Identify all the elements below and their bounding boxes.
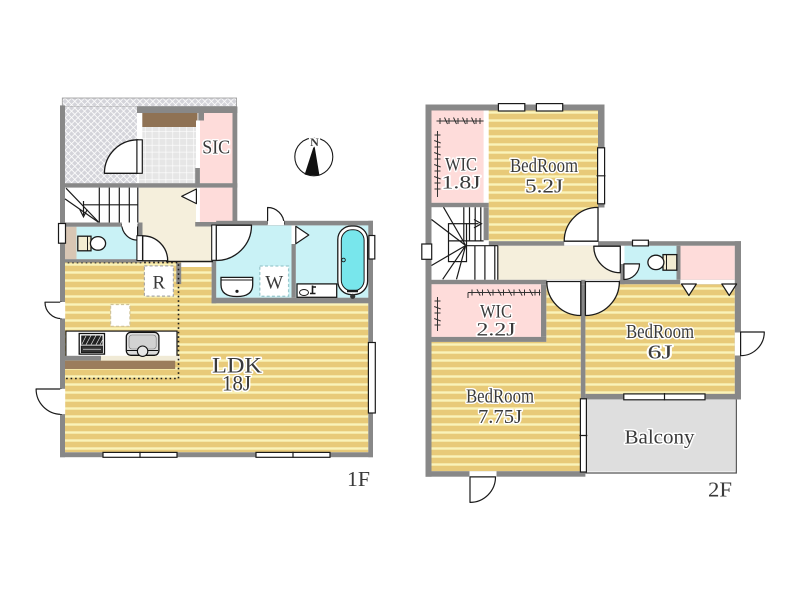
- svg-text:5.2J: 5.2J: [525, 176, 563, 198]
- svg-text:6J: 6J: [648, 342, 673, 364]
- svg-text:1F: 1F: [347, 467, 370, 491]
- svg-text:7.75J: 7.75J: [478, 406, 522, 428]
- svg-text:BedRoom: BedRoom: [626, 321, 694, 343]
- svg-text:W: W: [265, 273, 283, 294]
- svg-text:2F: 2F: [708, 478, 732, 502]
- svg-text:Balcony: Balcony: [625, 427, 695, 449]
- svg-text:2.2J: 2.2J: [477, 320, 516, 341]
- svg-text:R: R: [153, 273, 166, 294]
- svg-text:BedRoom: BedRoom: [510, 155, 578, 177]
- svg-text:1.8J: 1.8J: [442, 173, 481, 194]
- svg-text:18J: 18J: [222, 371, 251, 396]
- svg-text:SIC: SIC: [202, 137, 230, 159]
- svg-text:N: N: [310, 135, 319, 149]
- svg-text:BedRoom: BedRoom: [466, 386, 534, 408]
